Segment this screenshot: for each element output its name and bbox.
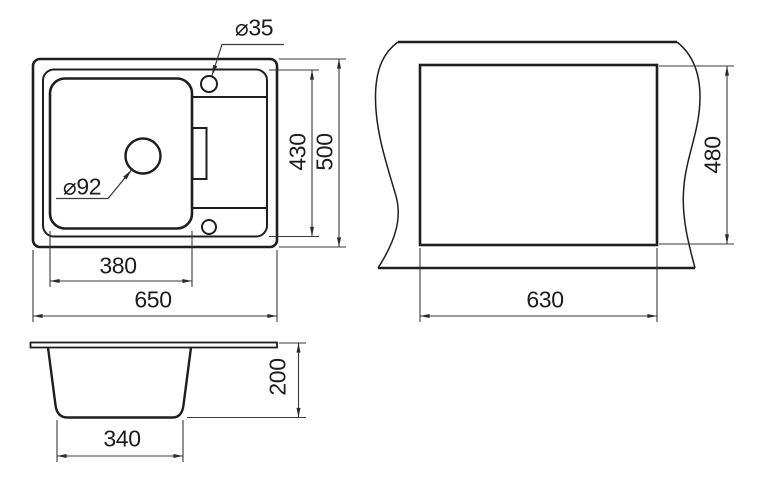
sink-rim xyxy=(43,70,267,237)
bowl-profile xyxy=(48,348,191,418)
dim-label-bowl-depth: 200 xyxy=(267,358,290,395)
dim-label-cutout-width: 630 xyxy=(526,289,563,312)
cutout-rectangle xyxy=(420,65,657,245)
top-view xyxy=(33,59,277,247)
bowl-outline xyxy=(50,79,192,229)
dim-label-bowl-width: 380 xyxy=(99,255,136,278)
technical-drawing-canvas: ⌀35 ⌀92 380 650 430 500 630 480 340 200 xyxy=(0,0,759,490)
dim-label-cutout-length: 480 xyxy=(702,136,725,173)
dim-label-drain-hole-diameter: ⌀92 xyxy=(63,176,101,199)
dim-label-overall-length: 500 xyxy=(314,133,337,170)
sink-outer-edge xyxy=(33,59,277,247)
dim-label-bowl-bottom-width: 340 xyxy=(103,428,140,451)
overflow-tab xyxy=(193,128,207,179)
countertop-break-line-left xyxy=(375,42,398,268)
cutout-view-dimensions xyxy=(420,66,734,322)
dim-label-overall-width: 650 xyxy=(134,289,171,312)
rim-profile xyxy=(31,343,278,348)
countertop-break-line-right xyxy=(677,42,700,268)
drawing-linework xyxy=(0,0,759,490)
cutout-view xyxy=(375,42,700,268)
side-view xyxy=(31,343,278,418)
dim-label-inner-length: 430 xyxy=(287,133,310,170)
faucet-hole-bottom xyxy=(202,220,216,234)
dim-label-faucet-hole-diameter: ⌀35 xyxy=(235,17,273,40)
faucet-hole-top xyxy=(201,76,217,92)
drain-hole xyxy=(126,139,161,174)
